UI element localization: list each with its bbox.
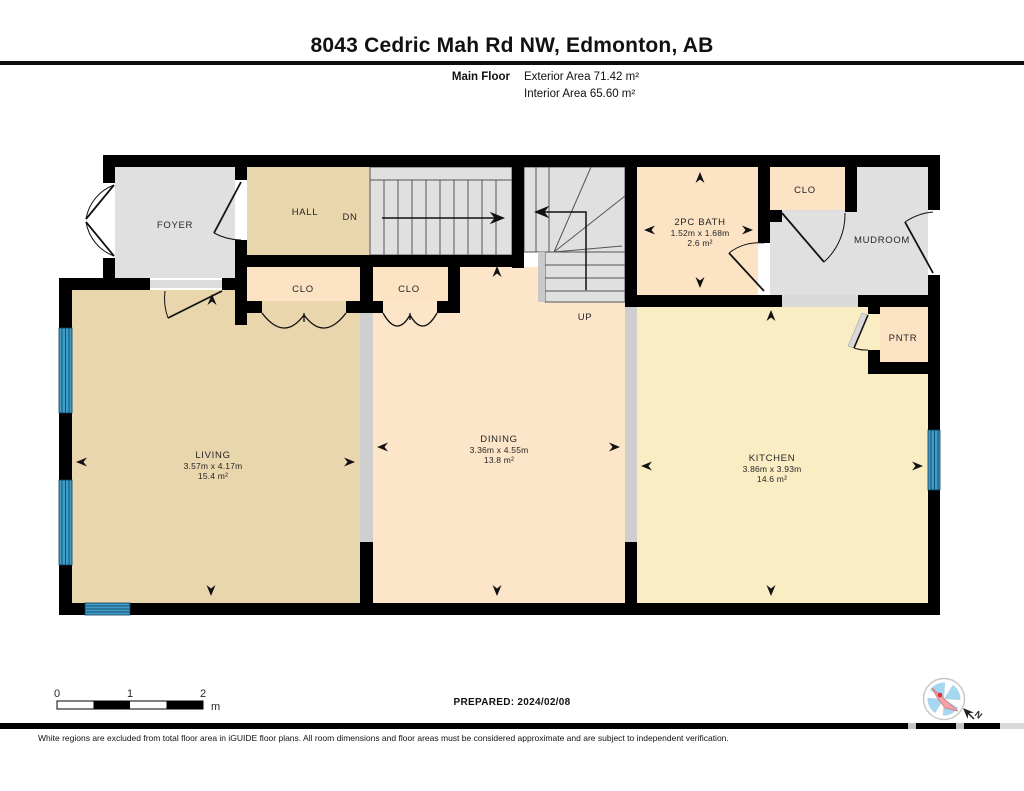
footer-bar <box>0 723 908 729</box>
room-living <box>72 290 360 603</box>
door-opening <box>103 183 115 258</box>
living-area: 15.4 m² <box>198 471 228 481</box>
kitchen-label: KITCHEN <box>749 453 796 464</box>
disclaimer-text: White regions are excluded from total fl… <box>38 733 998 743</box>
dining-dims: 3.36m x 4.55m <box>470 445 529 455</box>
window <box>85 603 130 615</box>
foyer-label: FOYER <box>157 220 193 231</box>
bath-label: 2PC BATH <box>674 217 725 228</box>
floor-label: Main Floor <box>360 71 510 83</box>
pantry-label: PNTR <box>889 333 918 344</box>
stairs-up-area <box>524 167 625 252</box>
mudroom-label: MUDROOM <box>854 235 910 246</box>
exterior-area: Exterior Area 71.42 m² <box>524 71 639 83</box>
floor-plan: FOYER HALL DN UP CLO CLO CLO 2PC BATH 1.… <box>0 0 1024 791</box>
hall-label: HALL <box>292 207 319 218</box>
floorplan-page: { "header": { "title": "8043 Cedric Mah … <box>0 0 1024 791</box>
interior-area: Interior Area 65.60 m² <box>524 88 635 100</box>
bath-area: 2.6 m² <box>687 238 712 248</box>
footer-bar-dash <box>916 723 956 729</box>
door-opening <box>928 210 940 275</box>
closet-hall-label: CLO <box>292 284 314 295</box>
room-mudroom-a <box>857 167 928 295</box>
window <box>59 480 72 565</box>
dining-area: 13.8 m² <box>484 455 514 465</box>
north-label: N <box>973 709 984 721</box>
footer-bar-dash <box>964 723 1000 729</box>
window <box>928 430 940 490</box>
closet-mudroom-label: CLO <box>794 185 816 196</box>
footer-bar-gap <box>908 723 916 729</box>
stair-up-label: UP <box>578 312 593 323</box>
dining-label: DINING <box>480 434 517 445</box>
footer-bar-gap <box>956 723 964 729</box>
kitchen-dims: 3.86m x 3.93m <box>743 464 802 474</box>
living-dims: 3.57m x 4.17m <box>184 461 243 471</box>
stair-down-label: DN <box>342 212 357 223</box>
footer-bar-fade <box>1000 723 1024 729</box>
page-title: 8043 Cedric Mah Rd NW, Edmonton, AB <box>0 34 1024 58</box>
title-rule <box>0 61 1024 65</box>
stairs-up-landing <box>545 252 625 302</box>
window <box>59 328 72 413</box>
bath-dims: 1.52m x 1.68m <box>671 228 730 238</box>
closet-dining-label: CLO <box>398 284 420 295</box>
living-label: LIVING <box>195 450 230 461</box>
prepared-date: PREPARED: 2024/02/08 <box>0 697 1024 708</box>
kitchen-area: 14.6 m² <box>757 474 787 484</box>
